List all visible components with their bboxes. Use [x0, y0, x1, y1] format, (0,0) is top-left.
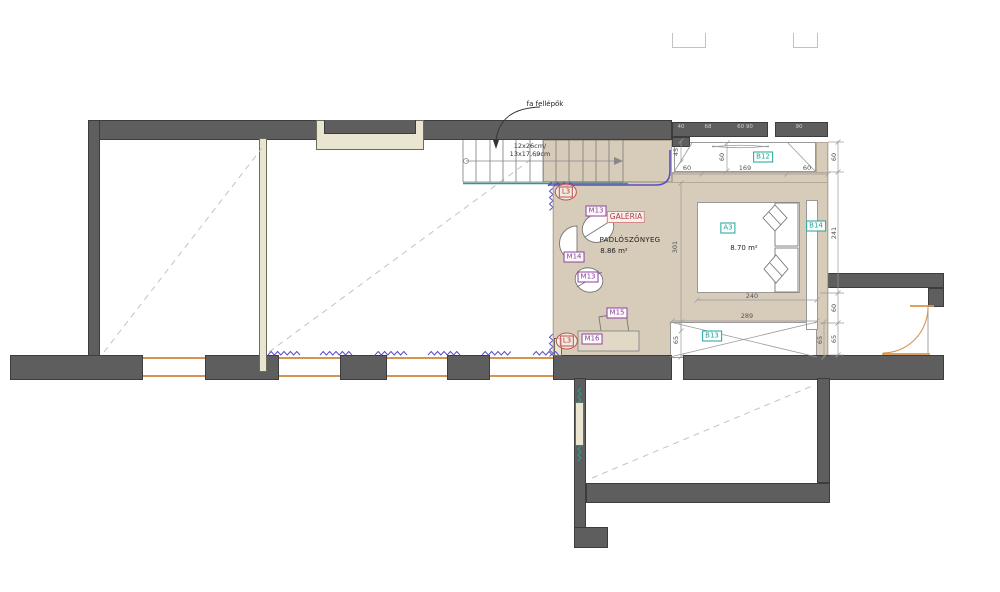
dim-right-65: 65	[830, 335, 838, 343]
tag-b13: B13	[702, 331, 722, 342]
wall-mark-2: 68	[705, 124, 712, 130]
wall-mark-1: 40	[678, 124, 685, 130]
dim-289: 289	[741, 312, 753, 320]
wall-mark-3: 60 90	[737, 124, 753, 130]
tag-a3: A3	[720, 223, 735, 234]
label-gallery-area: 8.86 m²	[600, 247, 627, 255]
tag-m15: M15	[607, 308, 628, 319]
dim-niche-60: 60	[718, 153, 726, 161]
dim-65-left: 65	[672, 336, 680, 344]
zigzag-windows-teal	[578, 388, 581, 461]
dim-65-right: 65	[816, 336, 824, 344]
gallery-furniture	[560, 209, 640, 351]
tag-l3-bottom-text: L3	[560, 336, 574, 347]
label-a3-area: 8.70 m²	[730, 244, 757, 252]
dim-45: 45	[672, 148, 680, 156]
dim-right-60b: 60	[830, 304, 838, 312]
entry-door	[882, 306, 934, 354]
tag-m13-top: M13	[586, 206, 607, 217]
tag-m13-mid: M13	[578, 272, 599, 283]
dim-301: 301	[671, 241, 679, 253]
tag-l3-top-text: L3	[559, 187, 573, 198]
label-galeria: GALÉRIA	[607, 211, 645, 223]
floor-plan: fa fellépők 12x26cm/ 13x17,69cm L3 L3 M1…	[0, 0, 1000, 592]
tag-m14: M14	[564, 252, 585, 263]
dim-top-60b: 60	[803, 164, 811, 172]
tag-b14: B14	[806, 221, 826, 232]
stair-size-line1: 12x26cm/	[510, 142, 551, 150]
zone-b13-cross	[670, 322, 817, 357]
dim-right-60a: 60	[830, 153, 838, 161]
dim-top-60a: 60	[683, 164, 691, 172]
tag-m16: M16	[582, 334, 603, 345]
dim-top-169: 169	[739, 164, 751, 172]
beds-a3	[763, 203, 798, 292]
wall-mark-4: 90	[796, 124, 803, 130]
dim-240: 240	[746, 292, 758, 300]
zigzag-windows-purple	[268, 183, 574, 357]
stair-note: fa fellépők	[527, 100, 564, 108]
tag-b12: B12	[753, 152, 773, 163]
stair-size-note: 12x26cm/ 13x17,69cm	[510, 142, 551, 158]
dim-right-241: 241	[830, 227, 838, 239]
label-padloszonyeg: PADLÓSZŐNYEG	[600, 236, 661, 244]
stair-size-line2: 13x17,69cm	[510, 150, 551, 158]
void-diagonals	[104, 144, 812, 478]
linework-layer	[0, 0, 1000, 592]
